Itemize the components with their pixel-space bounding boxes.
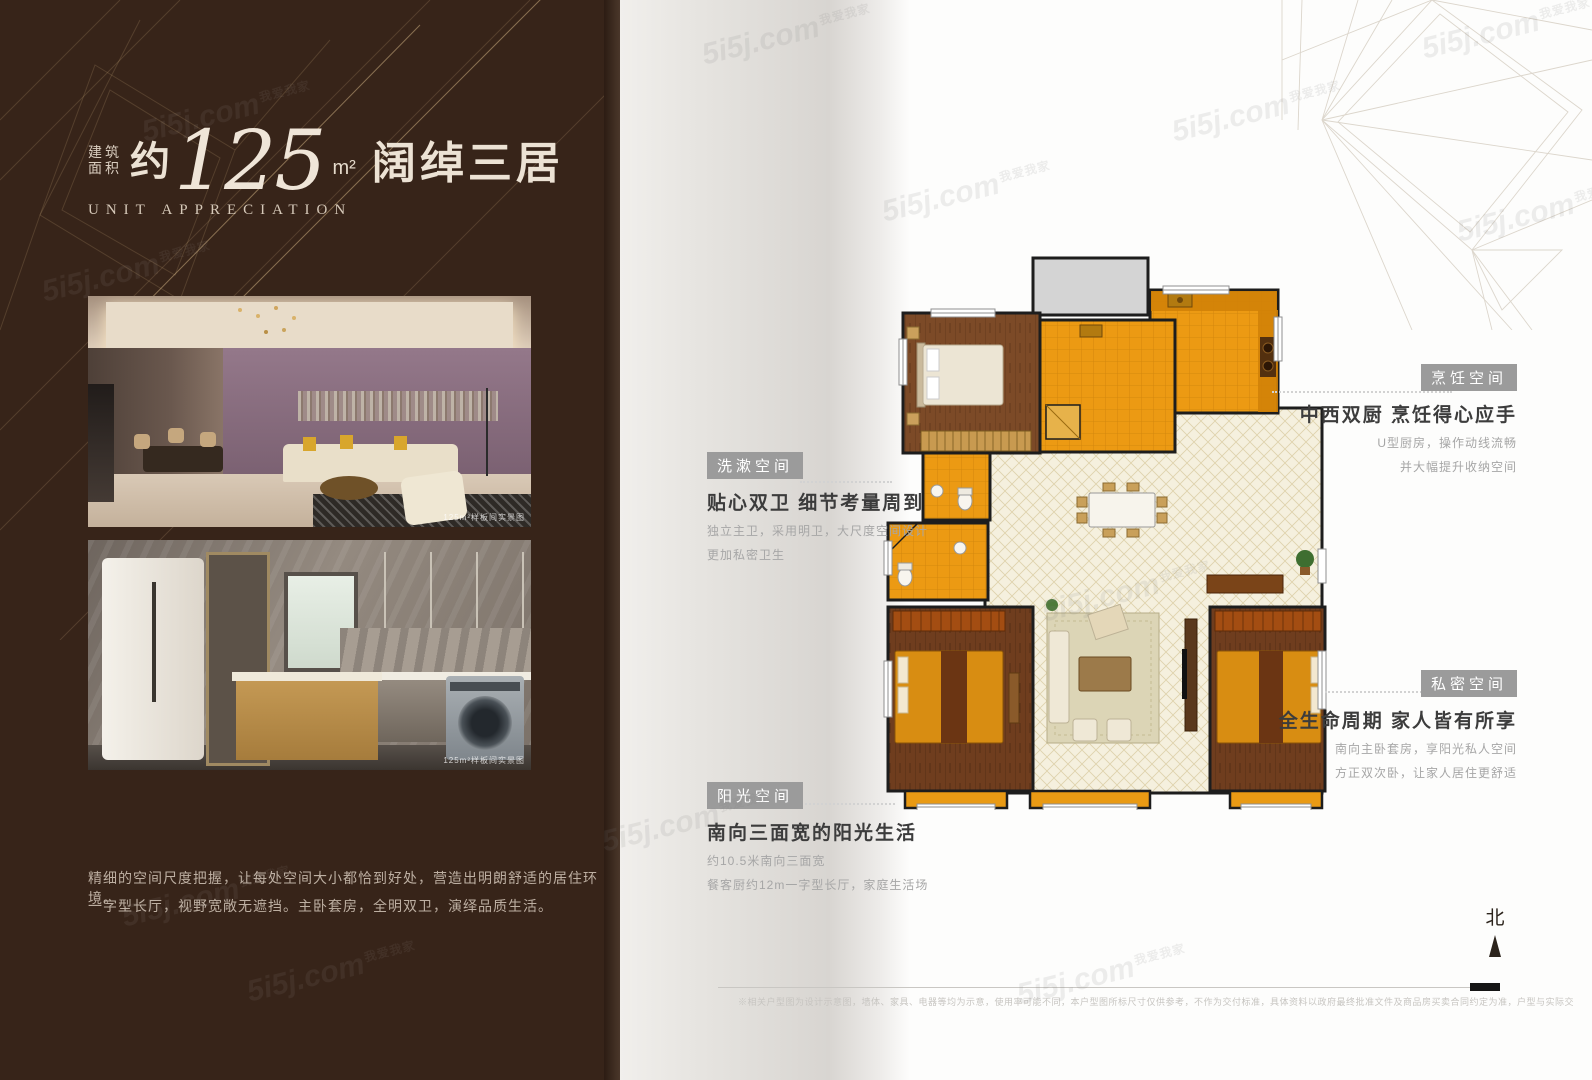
photo1-dining-chair [134,434,150,449]
area-unit: m² [333,157,356,180]
left-panel: 建筑 面积 约 125 m² 阔绰三居 UNIT APPRECIATION [0,0,620,1080]
photo1-wall-art [298,391,498,421]
scale-bar [1470,983,1500,991]
washing-badge: 洗漱空间 [707,452,803,479]
photo2-backsplash [340,628,531,674]
annotation-private: 私密空间 全生命周期 家人皆有所享 南向主卧套房，享阳光私人空间 方正双次卧，让… [1187,670,1517,788]
photo1-yellow-pillow [394,436,407,450]
brochure-page: 建筑 面积 约 125 m² 阔绰三居 UNIT APPRECIATION [0,0,1592,1080]
photo2-washer-door [458,696,512,750]
photo1-dining-chair [168,428,184,443]
photo1-cove-light [106,302,513,354]
photo1-chandelier [238,308,242,312]
photo-living-room: 125m²样板间实景图 [88,296,531,527]
photo1-coffee-table [320,476,378,500]
sunshine-headline: 南向三面宽的阳光生活 [707,818,1037,845]
annotation-washing: 洗漱空间 贴心双卫 细节考量周到 独立主卫，采用明卫，大尺度空间设计 更加私密卫… [707,452,1037,570]
sunshine-line1: 约10.5米南向三面宽 [707,852,1037,869]
footer-rule [718,987,1470,988]
cooking-badge: 烹饪空间 [1421,364,1517,391]
description-line2: 一字型长厅，视野宽敞无遮挡。主卧套房，全明双卫，演绎品质生活。 [88,896,553,916]
area-label-line2: 面积 [88,160,122,176]
cooking-line2: 并大幅提升收纳空间 [1187,458,1517,475]
photo2-caption: 125m²样板间实景图 [443,755,525,766]
subtitle-en: UNIT APPRECIATION [88,202,564,219]
west-kitchen-room [1040,320,1175,452]
sunshine-line2: 餐客厨约12m一字型长厅，家庭生活场 [707,876,1037,893]
photo1-dining-chair [200,432,216,447]
photo1-yellow-pillow [340,435,353,449]
photo2-island-top [232,672,382,681]
cooking-headline: 中西双厨 烹饪得心应手 [1187,400,1517,427]
page-title: 阔绰三居 [372,142,564,186]
washing-line1: 独立主卫，采用明卫，大尺度空间设计 [707,522,1037,539]
area-label: 建筑 面积 [88,144,122,176]
private-line2: 方正双次卧，让家人居住更舒适 [1187,764,1517,781]
photo-kitchen: 125m²样板间实景图 [88,540,531,770]
private-line1: 南向主卧套房，享阳光私人空间 [1187,740,1517,757]
washing-headline: 贴心双卫 细节考量周到 [707,488,1037,515]
photo2-washer-panel [450,682,520,691]
panel-edge-shade [604,0,620,1080]
photo2-upper-cabinets [340,552,531,628]
photo2-island [236,678,378,760]
annotation-cooking: 烹饪空间 中西双厨 烹饪得心应手 U型厨房，操作动线流畅 并大幅提升收纳空间 [1187,364,1517,482]
title-block: 建筑 面积 约 125 m² 阔绰三居 UNIT APPRECIATION [88,132,564,219]
washing-line2: 更加私密卫生 [707,546,1037,563]
bedroom-north [903,313,1040,453]
bedroom-master-south [888,607,1033,791]
airshaft-void [1033,258,1148,315]
photo2-fridge-handle [152,582,156,702]
photo1-sculpture [88,384,114,502]
title-row: 建筑 面积 约 125 m² 阔绰三居 [88,132,564,190]
north-indicator: 北 [1478,903,1512,957]
area-label-line1: 建筑 [88,144,122,160]
right-page: 烹饪空间 中西双厨 烹饪得心应手 U型厨房，操作动线流畅 并大幅提升收纳空间 洗… [620,0,1592,1080]
north-arrow-icon [1489,935,1501,957]
north-label: 北 [1478,903,1512,930]
approx-character: 约 [130,142,170,182]
disclaimer-text: ※相关户型图为设计示意图，墙体、家具、电器等均为示意，使用率可能不同，本户型图所… [738,995,1573,1008]
private-headline: 全生命周期 家人皆有所享 [1187,706,1517,733]
photo1-dining-table [143,446,223,472]
annotation-sunshine: 阳光空间 南向三面宽的阳光生活 约10.5米南向三面宽 餐客厨约12m一字型长厅… [707,782,1037,900]
cooking-line1: U型厨房，操作动线流畅 [1187,434,1517,451]
photo1-caption: 125m²样板间实景图 [443,512,525,523]
photo1-yellow-pillow [303,437,316,451]
photo1-floor-lamp [486,388,488,476]
private-badge: 私密空间 [1421,670,1517,697]
area-value: 125 [174,132,325,192]
sunshine-badge: 阳光空间 [707,782,803,809]
